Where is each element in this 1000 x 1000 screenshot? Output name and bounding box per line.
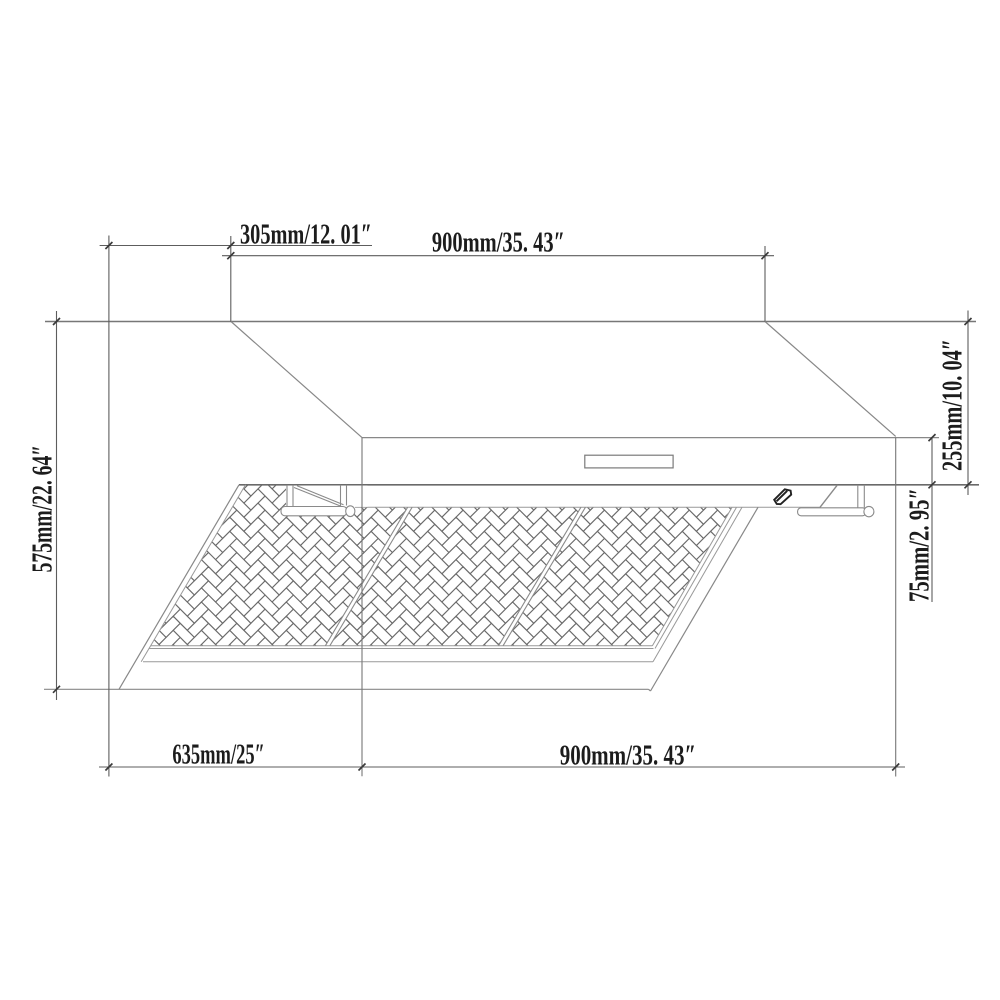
svg-text:900mm/35. 43″: 900mm/35. 43″ bbox=[560, 740, 696, 772]
svg-text:635mm/25″: 635mm/25″ bbox=[172, 739, 264, 771]
svg-text:75mm/2. 95″: 75mm/2. 95″ bbox=[904, 488, 936, 602]
svg-text:305mm/12. 01″: 305mm/12. 01″ bbox=[240, 219, 372, 251]
svg-text:575mm/22. 64″: 575mm/22. 64″ bbox=[27, 445, 59, 573]
svg-text:255mm/10. 04″: 255mm/10. 04″ bbox=[937, 339, 969, 471]
svg-text:900mm/35. 43″: 900mm/35. 43″ bbox=[432, 226, 565, 258]
